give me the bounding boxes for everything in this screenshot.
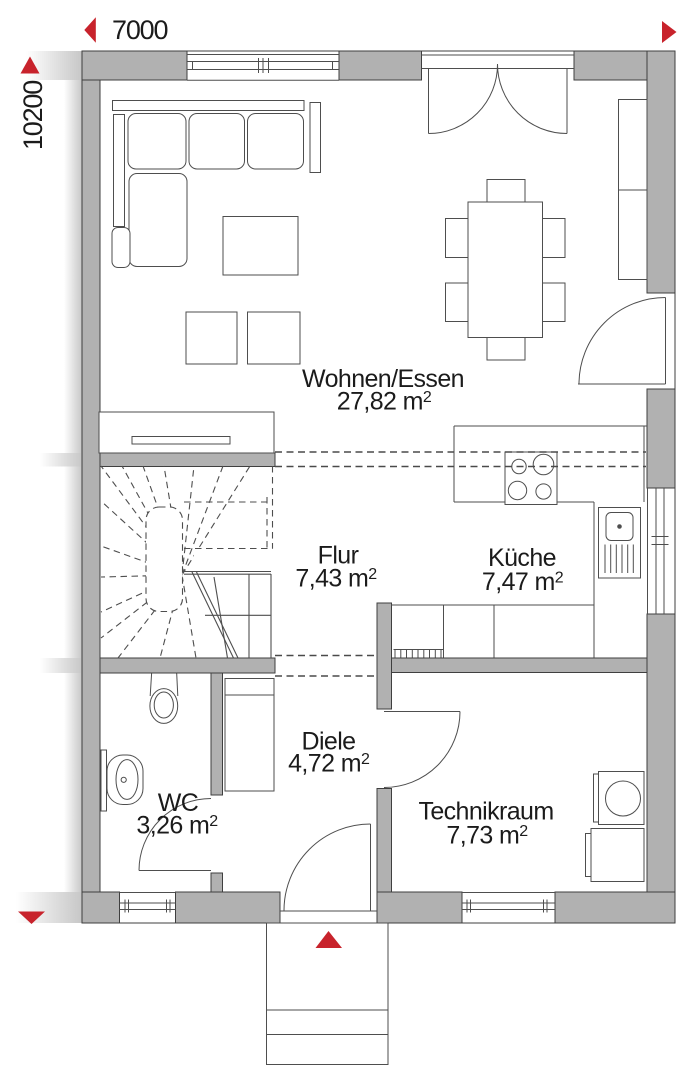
svg-text:7,47 m2: 7,47 m2 <box>482 568 564 596</box>
svg-text:3,26 m2: 3,26 m2 <box>136 812 218 840</box>
svg-text:7,43 m2: 7,43 m2 <box>295 565 377 593</box>
svg-text:7,73 m2: 7,73 m2 <box>446 822 528 850</box>
svg-text:7000: 7000 <box>112 15 167 45</box>
svg-text:4,72 m2: 4,72 m2 <box>288 750 370 778</box>
svg-text:10200: 10200 <box>18 81 48 150</box>
svg-text:27,82 m2: 27,82 m2 <box>337 388 432 416</box>
